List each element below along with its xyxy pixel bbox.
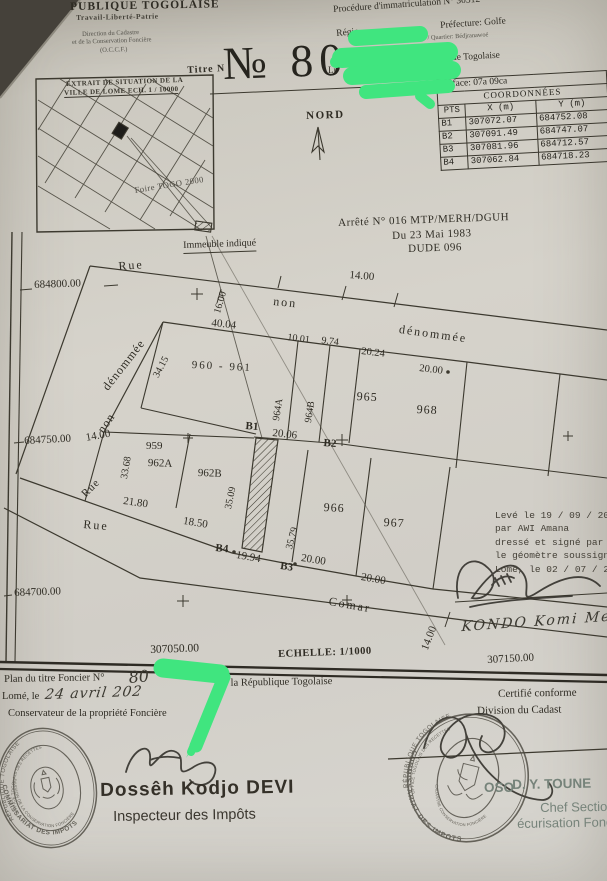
grid-684700: 684700.00 xyxy=(14,586,61,599)
region-fragment: Régio xyxy=(336,28,359,40)
y-b4: 684718.23 xyxy=(538,148,607,165)
lieu-fragment: Li xyxy=(328,66,336,75)
scanned-cadastral-plan: RÉPUBLIQUE TOGOLAISE OFFICE TOGOLAIS DES… xyxy=(0,0,607,881)
inset-map xyxy=(36,75,214,232)
street-non-top: non xyxy=(273,295,298,310)
point-B3: B3 xyxy=(279,561,293,574)
footer-of-republic: de la République Togolaise xyxy=(218,676,332,689)
immeuble-reference-box xyxy=(195,221,212,232)
inspector-name-stamp: Dossêh Kodjo DEVI xyxy=(100,778,295,801)
measure-14-00-top: 14.00 xyxy=(349,270,375,284)
measure-40-04: 40.04 xyxy=(211,318,237,332)
arrete-line3: DUDE 096 xyxy=(408,242,462,255)
survey-author-line: par AWI Amana xyxy=(495,524,569,534)
footer-lome-le: Lomé, le xyxy=(2,691,39,702)
chef-name-fragment: OSO xyxy=(484,781,514,795)
point-B4: B4 xyxy=(215,543,229,556)
measure-20-06: 20.06 xyxy=(272,428,298,442)
grid-684750: 684750.00 xyxy=(24,434,71,448)
immeuble-indique-label: Immeuble indiqué xyxy=(183,238,256,253)
footer-division-cadastre: Division du Cadast xyxy=(477,705,562,718)
chef-title-stamp: Chef Section xyxy=(540,800,607,815)
point-B2: B2 xyxy=(323,438,337,451)
measure-9-74: 9.74 xyxy=(321,336,340,349)
footer-date-handwritten: 24 avril 202 xyxy=(44,685,143,703)
pt-b4: B4 xyxy=(441,156,469,170)
street-lines xyxy=(4,266,607,637)
chef-service-stamp: écurisation Fonc xyxy=(517,815,607,830)
street-rue-top: Rue xyxy=(118,258,144,272)
parcel-968: 968 xyxy=(416,403,438,417)
parcel-959: 959 xyxy=(146,441,163,453)
parcel-966: 966 xyxy=(323,501,345,515)
footer-conservateur: Conservateur de la propriété Foncière xyxy=(8,708,167,719)
direction-line3: (O.C.C.F.) xyxy=(100,47,128,55)
parcel-962A: 962A xyxy=(148,458,173,470)
left-round-stamp: RÉPUBLIQUE TOGOLAISE OFFICE TOGOLAIS DES… xyxy=(0,719,107,857)
coordinates-table: Surface: 07a 09ca COORDONNÉES PTS X (m) … xyxy=(436,70,607,171)
titre-label: Titre N xyxy=(187,64,226,76)
svg-text:CADASTRE CONSERVATION FONCIÈRE: CADASTRE CONSERVATION FONCIÈRE xyxy=(426,783,492,832)
grid-307150: 307150.00 xyxy=(487,653,534,667)
subject-parcel-hatched xyxy=(242,438,278,552)
survey-drawn-line: dressé et signé par xyxy=(495,538,603,548)
inspector-title-stamp: Inspecteur des Impôts xyxy=(113,808,256,826)
subject-parcel-marker xyxy=(112,122,128,139)
survey-date-line: Levé le 19 / 09 / 201 xyxy=(495,511,607,521)
north-arrow xyxy=(312,127,324,160)
street-rue-mid: Rue xyxy=(83,518,109,533)
parcel-967: 967 xyxy=(383,516,405,530)
north-label: NORD xyxy=(306,110,345,123)
survey-lome-date-line: Lomé, le 02 / 07 / 2 xyxy=(495,565,607,575)
grid-684800: 684800.00 xyxy=(34,278,81,291)
point-B1: B1 xyxy=(245,421,259,434)
survey-ticks xyxy=(4,276,573,627)
footer-certifie-conforme: Certifié conforme xyxy=(498,688,577,701)
chef-name-stamp: D. Y. TOUNE xyxy=(512,777,591,793)
parcel-962B: 962B xyxy=(198,468,222,480)
parcel-965: 965 xyxy=(356,390,378,404)
survey-geometer-line: le géomètre soussigné xyxy=(495,551,607,561)
grid-307050: 307050.00 xyxy=(150,642,199,656)
right-stamp-inner-text: CADASTRE CONSERVATION FONCIÈRE xyxy=(426,783,492,832)
titre-number: № 80 xyxy=(222,36,349,89)
national-motto: Travail-Liberté-Patrie xyxy=(76,13,159,22)
footer-plan-title-label: Plan du titre Foncier N° xyxy=(4,672,105,685)
